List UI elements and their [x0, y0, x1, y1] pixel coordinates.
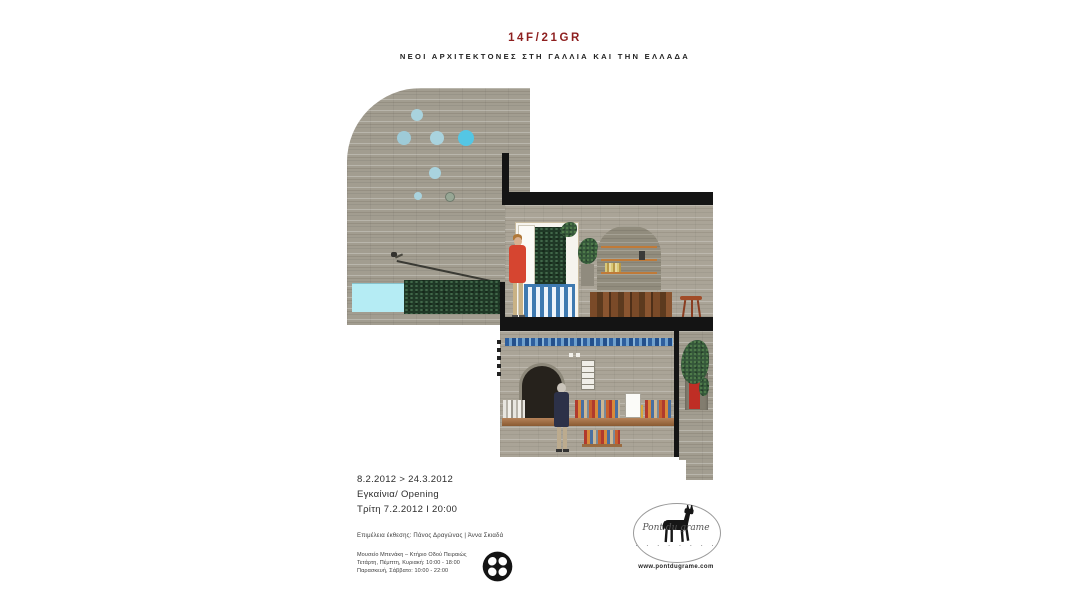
venue-hours-1: Τετάρτη, Πέμπτη, Κυριακή: 10:00 - 18:00	[357, 559, 477, 567]
shelf-rail	[601, 259, 657, 261]
page-title: 14F/21GR	[345, 32, 745, 44]
partner-url: www.pontdugrame.com	[628, 564, 724, 570]
event-dates: 8.2.2012 > 24.3.2012	[357, 474, 453, 485]
curators-line: Επιμέλεια έκθεσης: Πάνος Δραγώνας | Άννα…	[357, 533, 503, 539]
book-row	[645, 400, 671, 418]
skylight-circle	[429, 167, 441, 179]
arched-shelf-niche	[597, 226, 661, 290]
floor-slab	[500, 317, 713, 331]
poster-page: 14F/21GR ΝΕΟΙ ΑΡΧΙΤΕΚΤΟΝΕΣ ΣΤΗ ΓΑΛΛΙΑ ΚΑ…	[0, 0, 1074, 600]
figure-leg	[513, 283, 517, 315]
figure-leg	[519, 283, 523, 315]
figure-shoe	[563, 449, 569, 452]
section-cut-post	[502, 153, 509, 195]
wood-counter	[590, 292, 672, 318]
figure-shoe	[556, 449, 562, 452]
figure-leg	[563, 427, 567, 449]
skylight-circle	[411, 109, 423, 121]
column-step-notch	[679, 460, 686, 480]
red-jacket	[509, 245, 526, 283]
dark-coat	[554, 392, 569, 427]
partner-logo: Pont du grame · · · · · · · · www.pontdu…	[628, 498, 724, 578]
shelf-rail	[601, 272, 657, 274]
poster-subtitle: ΝΕΟΙ ΑΡΧΙΤΕΚΤΟΝΕΣ ΣΤΗ ΓΑΛΛΙΑ ΚΑΙ ΤΗΝ ΕΛΛ…	[345, 52, 745, 61]
skylight-circle	[430, 131, 444, 145]
framed-print	[625, 393, 641, 418]
plant-shelf-bracket	[581, 264, 594, 286]
stool-leg	[691, 300, 693, 318]
shelf-rail	[601, 246, 657, 248]
figure-dark-coat	[550, 383, 574, 457]
skylight-circle-bright	[458, 130, 474, 146]
venue-block: Μουσείο Μπενάκη – Κτήριο Οδού Πειραιώς Τ…	[357, 551, 477, 575]
skylight-circle-dim	[445, 192, 455, 202]
wall-label	[569, 353, 573, 357]
poster-header: 14F/21GR ΝΕΟΙ ΑΡΧΙΤΕΚΤΟΝΕΣ ΣΤΗ ΓΑΛΛΙΑ ΚΑ…	[345, 32, 745, 61]
venue-hours-2: Παρασκευή, Σάββατο: 10:00 - 22:00	[357, 567, 477, 575]
shelf-board-lower	[582, 444, 622, 447]
section-illustration	[347, 88, 713, 482]
wall-label	[576, 353, 580, 357]
logo-dots: · · · · · · · ·	[628, 541, 724, 550]
niche-object	[639, 251, 645, 260]
cut-hatch-marks	[497, 340, 501, 380]
blue-tile-band	[505, 338, 673, 346]
opening-label: Εγκαίνια/ Opening	[357, 489, 439, 500]
museum-logo-icon	[482, 551, 513, 582]
venue-name: Μουσείο Μπενάκη – Κτήριο Οδού Πειραιώς	[357, 551, 477, 559]
logo-script-text: Pont du grame	[628, 523, 724, 533]
book-row	[575, 400, 620, 418]
niche-books	[605, 263, 621, 272]
small-wall-unit	[581, 360, 595, 390]
opening-time: Τρίτη 7.2.2012 Ι 20:00	[357, 504, 457, 515]
book-row-lower	[584, 430, 620, 444]
window-trees	[404, 280, 500, 314]
figure-leg	[557, 427, 561, 449]
roof-slab	[502, 192, 713, 205]
figure-red-coat	[504, 234, 532, 320]
shelf-board	[502, 418, 677, 426]
skylight-circle	[414, 192, 422, 200]
gray-books	[503, 400, 525, 418]
skylight-circle	[397, 131, 411, 145]
